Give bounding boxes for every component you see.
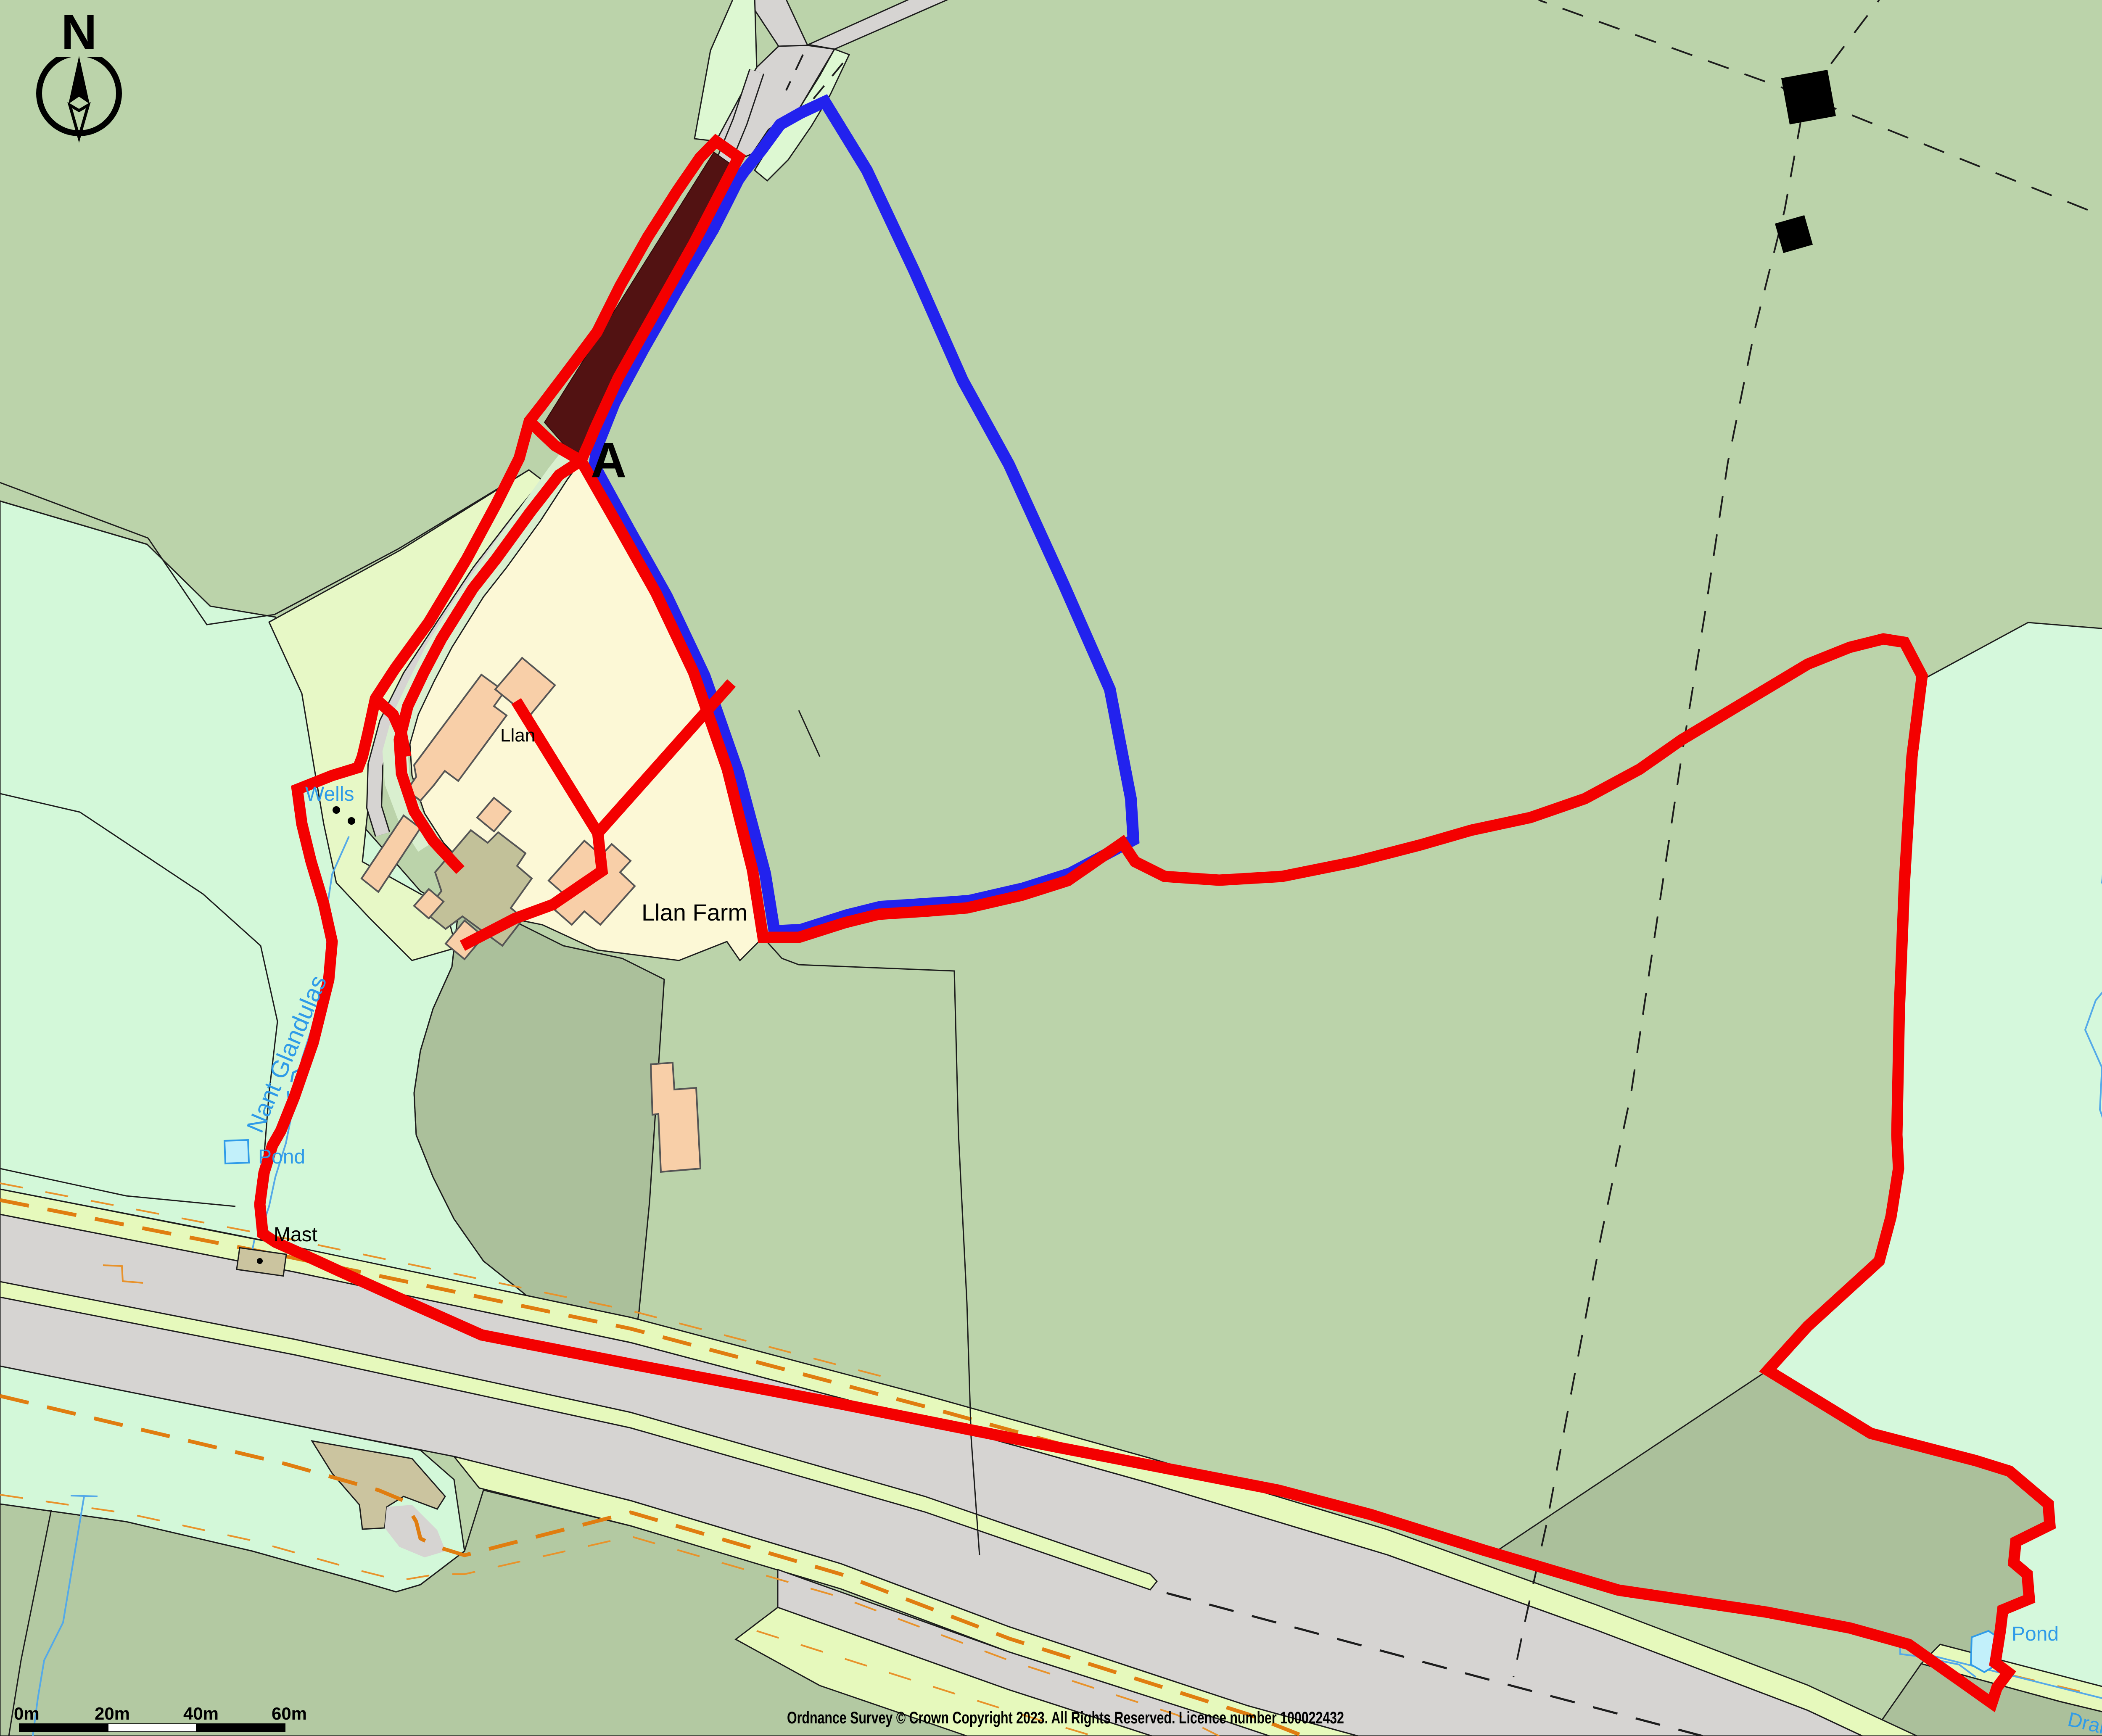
svg-text:A: A bbox=[591, 433, 626, 488]
svg-text:Pond: Pond bbox=[258, 1146, 305, 1168]
svg-text:0m: 0m bbox=[14, 1704, 40, 1723]
svg-text:Wells: Wells bbox=[305, 783, 354, 805]
svg-text:Mast: Mast bbox=[274, 1224, 317, 1246]
svg-text:60m: 60m bbox=[272, 1704, 307, 1723]
svg-text:40m: 40m bbox=[183, 1704, 219, 1723]
svg-text:Ordnance Survey © Crown Copyri: Ordnance Survey © Crown Copyright 2023. … bbox=[787, 1709, 1344, 1727]
svg-text:Pond: Pond bbox=[2012, 1623, 2059, 1645]
svg-text:Llan: Llan bbox=[500, 725, 535, 746]
svg-text:20m: 20m bbox=[95, 1704, 130, 1723]
svg-text:Llan Farm: Llan Farm bbox=[642, 899, 747, 926]
svg-text:N: N bbox=[61, 5, 97, 60]
